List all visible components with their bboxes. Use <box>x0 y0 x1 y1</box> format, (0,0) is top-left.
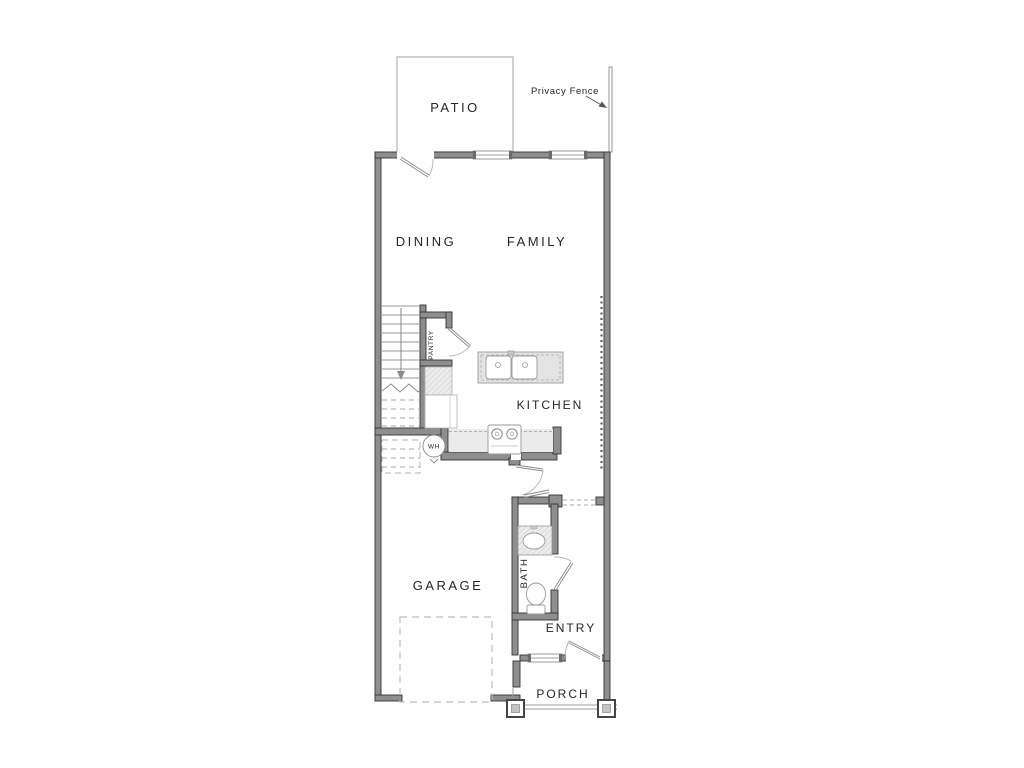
stairs-under-storage <box>382 440 420 473</box>
stair-direction-arrow-icon <box>397 371 405 380</box>
burner-right <box>507 429 517 439</box>
burner-left <box>492 429 502 439</box>
refrigerator <box>425 395 457 428</box>
pantry-label: PANTRY <box>428 330 435 359</box>
wall-garage-bath <box>512 497 518 655</box>
range-stove <box>488 425 521 454</box>
entry-hall-door-swing <box>524 490 549 498</box>
toilet-tank <box>527 605 545 614</box>
wall-porch-left-stub <box>513 661 520 687</box>
entry-label: ENTRY <box>546 621 596 635</box>
faucet-icon <box>508 351 514 355</box>
wall-opening-stub-right <box>596 497 604 505</box>
vanity-faucet-icon <box>531 526 537 529</box>
window-top-1 <box>473 151 512 159</box>
privacy-fence: Privacy Fence <box>531 67 612 152</box>
patio-door-swing <box>400 157 433 177</box>
room-labels: DINING FAMILY PANTRY KITCHEN GARAGE BATH… <box>396 234 596 701</box>
wall-counter-cap <box>553 427 561 454</box>
bath-door-swing <box>554 557 573 590</box>
privacy-fence-label: Privacy Fence <box>531 86 599 97</box>
patio: PATIO <box>397 57 513 152</box>
window-top-2 <box>549 151 587 159</box>
floor-plan-canvas: PATIO Privacy Fence <box>0 0 1024 768</box>
kitchen-island <box>478 351 563 383</box>
pantry-door-swing <box>448 328 471 357</box>
garage-label: GARAGE <box>413 578 484 593</box>
porch-post-left <box>507 700 524 717</box>
fence-leader-arrow-icon <box>599 102 608 109</box>
kitchen-label: KITCHEN <box>517 398 584 412</box>
hall-door-swing <box>516 465 543 495</box>
family-label: FAMILY <box>507 234 567 249</box>
wall-right <box>604 152 610 661</box>
garage-door-outline <box>400 617 492 702</box>
wall-pantry-bottom <box>420 360 452 366</box>
dishwasher-cabinet <box>425 367 452 395</box>
vanity-sink <box>518 526 552 555</box>
wall-garage-bottom-left <box>375 695 402 701</box>
porch-label: PORCH <box>536 687 589 701</box>
wall-porch-right <box>604 661 610 702</box>
window-entry-front <box>528 654 562 662</box>
dining-label: DINING <box>396 234 457 249</box>
stair-break-line <box>382 384 420 392</box>
bath-label: BATH <box>519 558 530 589</box>
wall-left <box>375 152 381 701</box>
wall-kitchen-bottom-2 <box>521 452 557 460</box>
patio-label: PATIO <box>430 100 480 115</box>
stairs <box>382 306 420 473</box>
porch-post-right <box>598 700 615 717</box>
sink-bowl <box>523 533 545 549</box>
wall-pantry-right-stub <box>446 312 452 328</box>
water-heater-label: WH <box>428 444 440 451</box>
water-heater-chevron-icon <box>430 459 438 463</box>
privacy-fence-line <box>609 67 612 152</box>
wall-under-stair <box>375 428 448 435</box>
